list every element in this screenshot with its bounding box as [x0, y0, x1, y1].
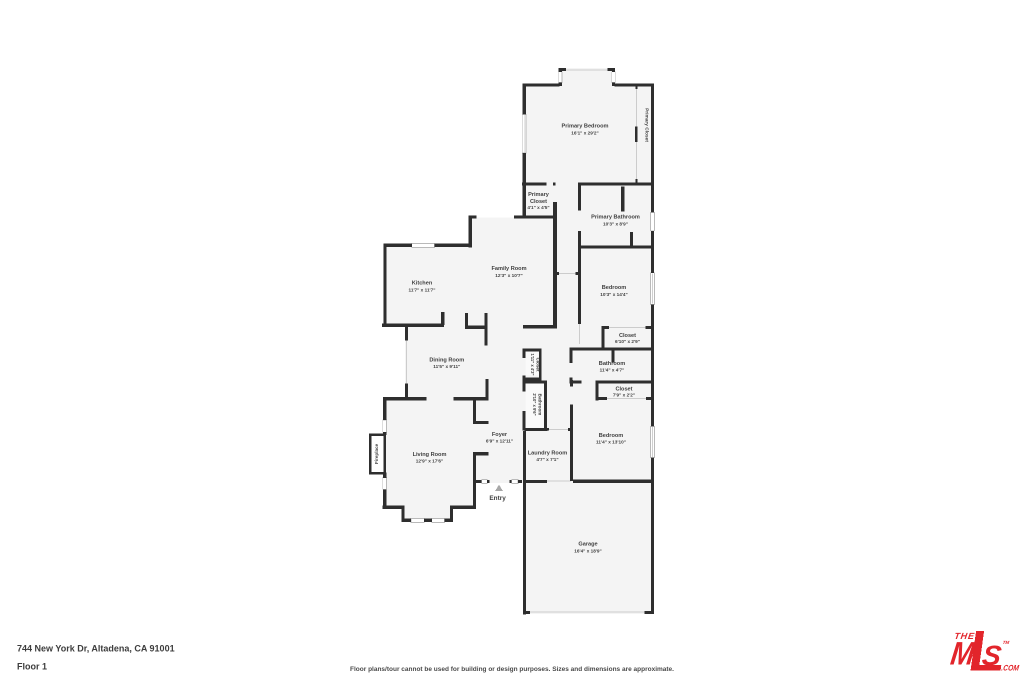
- svg-text:Entry: Entry: [489, 495, 506, 502]
- svg-text:11'5" x 9'11": 11'5" x 9'11": [433, 364, 460, 369]
- svg-text:Living Room: Living Room: [413, 452, 447, 458]
- svg-text:11'7" x 11'7": 11'7" x 11'7": [408, 288, 435, 293]
- svg-text:Bathroom: Bathroom: [537, 394, 542, 416]
- svg-text:2'10" x 9'6": 2'10" x 9'6": [532, 393, 537, 415]
- svg-text:Closet: Closet: [535, 357, 540, 372]
- svg-text:16'4" x 18'9": 16'4" x 18'9": [574, 549, 602, 554]
- svg-text:11'4" x 4'7": 11'4" x 4'7": [600, 368, 625, 373]
- svg-text:Bathroom: Bathroom: [599, 361, 625, 367]
- svg-text:Primary: Primary: [528, 192, 550, 198]
- svg-text:Primary Bathroom: Primary Bathroom: [591, 215, 640, 221]
- svg-text:11'4" x 13'10": 11'4" x 13'10": [596, 440, 626, 445]
- svg-text:Bedroom: Bedroom: [602, 285, 627, 291]
- svg-text:Garage: Garage: [578, 542, 597, 548]
- svg-text:12'9" x 17'6": 12'9" x 17'6": [416, 459, 444, 464]
- svg-text:10'3" x 8'9": 10'3" x 8'9": [603, 222, 628, 227]
- svg-text:Floor 1: Floor 1: [17, 662, 47, 672]
- svg-text:1'11" x 4'3": 1'11" x 4'3": [530, 353, 535, 375]
- svg-text:Fireplace: Fireplace: [374, 443, 379, 464]
- svg-text:Laundry Room: Laundry Room: [528, 451, 567, 457]
- svg-text:Dining Room: Dining Room: [429, 358, 464, 364]
- svg-text:Floor plans/tour cannot be use: Floor plans/tour cannot be used for buil…: [350, 666, 674, 673]
- svg-text:.COM: .COM: [1001, 664, 1020, 673]
- svg-text:12'3" x 10'7": 12'3" x 10'7": [495, 273, 523, 278]
- svg-text:Family Room: Family Room: [491, 266, 526, 272]
- svg-text:Foyer: Foyer: [492, 432, 508, 438]
- svg-text:4'7" x 7'1": 4'7" x 7'1": [536, 457, 558, 462]
- svg-text:Kitchen: Kitchen: [412, 281, 433, 287]
- svg-text:Primary Bedroom: Primary Bedroom: [562, 124, 609, 130]
- svg-text:16'1" x 29'2": 16'1" x 29'2": [571, 131, 599, 136]
- svg-text:7'9" x 2'2": 7'9" x 2'2": [613, 393, 635, 398]
- svg-text:10'3" x 14'4": 10'3" x 14'4": [600, 292, 628, 297]
- svg-text:744 New York Dr, Altadena, CA: 744 New York Dr, Altadena, CA 91001: [17, 644, 175, 654]
- svg-text:Bedroom: Bedroom: [599, 433, 624, 439]
- svg-text:Primary Closet: Primary Closet: [644, 108, 650, 142]
- svg-text:4'1" x 4'5": 4'1" x 4'5": [527, 205, 549, 210]
- svg-text:TM: TM: [1002, 640, 1009, 645]
- svg-text:6'9" x 12'11": 6'9" x 12'11": [486, 439, 513, 444]
- svg-text:6'10" x 2'9": 6'10" x 2'9": [615, 339, 640, 344]
